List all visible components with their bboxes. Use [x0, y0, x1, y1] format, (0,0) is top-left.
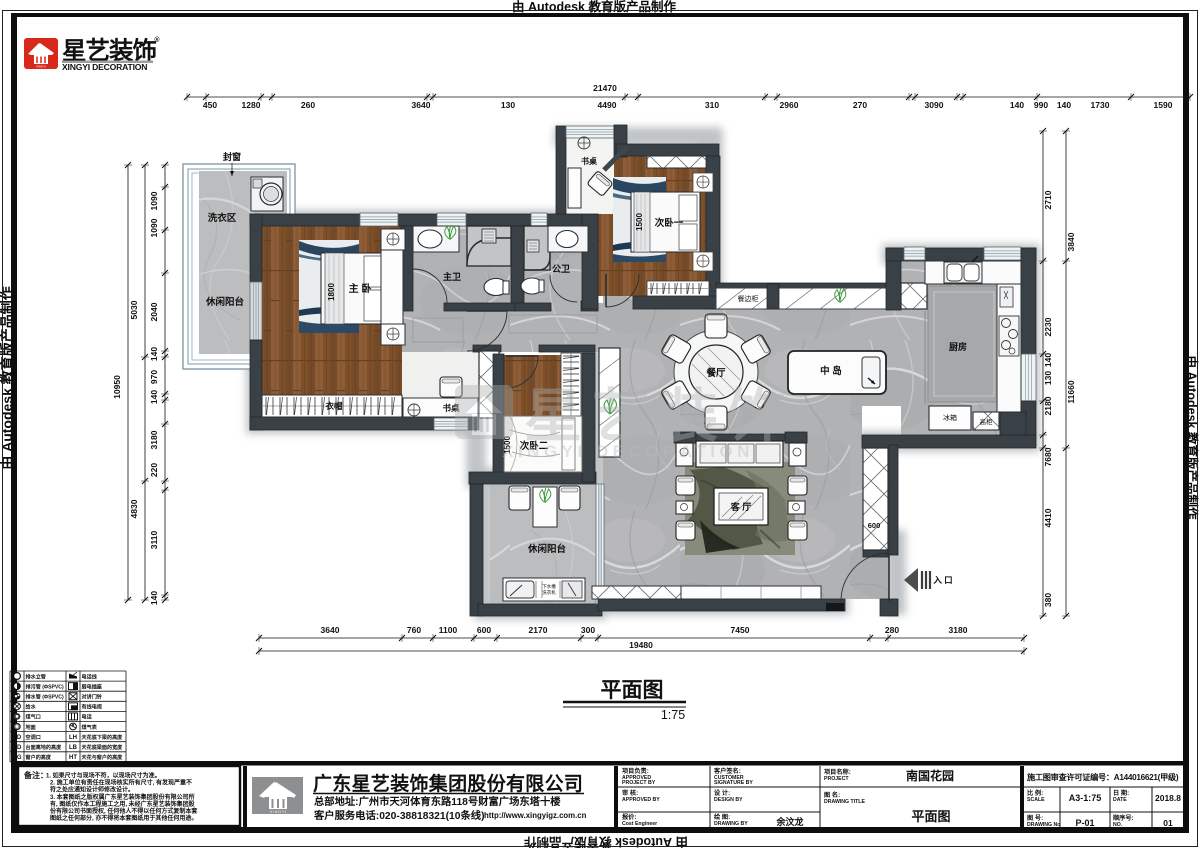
svg-text:冰箱: 冰箱	[943, 413, 957, 422]
svg-text:煤气口: 煤气口	[25, 714, 41, 721]
svg-text:休闲阳台: 休闲阳台	[205, 296, 245, 308]
svg-text:符之处应通知设计师修改设计。: 符之处应通知设计师修改设计。	[50, 786, 134, 794]
svg-text:01: 01	[1163, 818, 1173, 828]
svg-text:300: 300	[581, 625, 595, 635]
svg-text:DRAWING BY: DRAWING BY	[714, 821, 748, 827]
svg-text:总部地址:广州市天河体育东路118号财富广场东塔十楼: 总部地址:广州市天河体育东路118号财富广场东塔十楼	[314, 795, 561, 808]
svg-text:DRAWING TITLE: DRAWING TITLE	[824, 799, 865, 805]
svg-text:1730: 1730	[1091, 100, 1110, 110]
svg-text:http://www.xingyigz.com.cn: http://www.xingyigz.com.cn	[484, 811, 587, 820]
svg-text:10950: 10950	[112, 375, 122, 399]
svg-text:140: 140	[149, 347, 159, 361]
svg-text:排水立管: 排水立管	[26, 673, 46, 680]
svg-text:3180: 3180	[949, 625, 968, 635]
svg-text:3180: 3180	[149, 430, 159, 449]
svg-text:广东星艺装饰集团股份有限公司: 广东星艺装饰集团股份有限公司	[313, 772, 583, 795]
svg-text:1100: 1100	[439, 625, 458, 635]
svg-text:图纸之任何部分, 亦不得将本套图纸用于其他任何用途。: 图纸之任何部分, 亦不得将本套图纸用于其他任何用途。	[50, 814, 197, 822]
svg-text:600: 600	[477, 625, 491, 635]
svg-text:21470: 21470	[593, 83, 617, 93]
svg-text:餐厅: 餐厅	[705, 367, 726, 379]
svg-text:对讲门铃: 对讲门铃	[82, 693, 103, 700]
svg-text:1090: 1090	[149, 218, 159, 237]
svg-text:450: 450	[203, 100, 217, 110]
svg-text:5030: 5030	[129, 300, 139, 319]
svg-text:项目负责:: 项目负责:	[622, 767, 649, 775]
svg-text:图 号:: 图 号:	[1027, 814, 1043, 822]
svg-text:HT: HT	[69, 755, 77, 761]
svg-text:DATE: DATE	[1113, 797, 1127, 803]
svg-text:2230: 2230	[1043, 317, 1053, 336]
svg-text:项目名称:: 项目名称:	[824, 768, 851, 776]
svg-text:弱电插座: 弱电插座	[82, 683, 102, 690]
svg-text:APPROVED BY: APPROVED BY	[622, 797, 660, 803]
svg-text:施工图审查许可证编号：A144016621(甲级): 施工图审查许可证编号：A144016621(甲级)	[1027, 772, 1179, 782]
svg-text:客 厅: 客 厅	[730, 501, 752, 512]
svg-text:衣帽: 衣帽	[325, 401, 343, 411]
svg-text:给水: 给水	[26, 704, 37, 711]
svg-text:3840: 3840	[1066, 232, 1076, 251]
svg-text:比 例:: 比 例:	[1027, 789, 1043, 797]
svg-text:1. 如果尺寸与现场不符，以现场尺寸为准。: 1. 如果尺寸与现场不符，以现场尺寸为准。	[46, 772, 161, 780]
svg-text:星艺装饰: 星艺装饰	[524, 384, 796, 449]
svg-text:XINGYI: XINGYI	[36, 65, 46, 69]
svg-text:平面图: 平面图	[911, 809, 950, 824]
svg-text:排水管 (ΦSPVC): 排水管 (ΦSPVC)	[26, 693, 64, 700]
svg-text:中 岛: 中 岛	[820, 365, 842, 377]
svg-text:2710: 2710	[1043, 190, 1053, 209]
svg-text:次卧一: 次卧一	[655, 217, 684, 229]
svg-text:1500: 1500	[635, 213, 644, 231]
svg-text:天花底下梁的高度: 天花底下梁的高度	[82, 734, 124, 741]
svg-text:270: 270	[853, 100, 867, 110]
svg-text:封窗: 封窗	[223, 151, 241, 162]
svg-text:休闲阳台: 休闲阳台	[527, 543, 567, 555]
svg-text:7680: 7680	[1043, 447, 1053, 466]
svg-text:图 名:: 图 名:	[824, 791, 840, 799]
svg-text:设 计:: 设 计:	[714, 789, 730, 797]
svg-text:Cost Engineer: Cost Engineer	[622, 821, 657, 827]
svg-text:洗衣机: 洗衣机	[542, 589, 556, 596]
svg-text:台面离地的高度: 台面离地的高度	[26, 744, 63, 751]
svg-text:2040: 2040	[149, 302, 159, 321]
svg-text:地面: 地面	[26, 724, 36, 731]
svg-text:DESIGN BY: DESIGN BY	[714, 797, 743, 803]
svg-text:140: 140	[1057, 100, 1071, 110]
svg-text:天花底梁面的宽度: 天花底梁面的宽度	[82, 744, 124, 751]
svg-text:HG: HG	[13, 755, 22, 761]
svg-text:1590: 1590	[1154, 100, 1173, 110]
svg-text:电话: 电话	[82, 714, 92, 721]
svg-text:140: 140	[149, 390, 159, 404]
svg-text:余汶龙: 余汶龙	[775, 816, 803, 827]
svg-text:顺序号:: 顺序号:	[1113, 814, 1134, 822]
svg-text:SCALE: SCALE	[1027, 797, 1045, 803]
svg-text:140: 140	[149, 591, 159, 605]
svg-text:1800: 1800	[327, 283, 336, 301]
svg-text:有, 图纸仅作本工程施工之用, 未经广东星艺装饰集团股: 有, 图纸仅作本工程施工之用, 未经广东星艺装饰集团股	[50, 800, 196, 808]
svg-text:平面图: 平面图	[601, 679, 664, 702]
svg-text:3090: 3090	[925, 100, 944, 110]
svg-text:2960: 2960	[780, 100, 799, 110]
svg-text:260: 260	[301, 100, 315, 110]
svg-text:XINGYI DECORATION: XINGYI DECORATION	[62, 62, 147, 72]
svg-text:绘 图:: 绘 图:	[714, 813, 730, 821]
svg-text:2180: 2180	[1043, 396, 1053, 415]
svg-text:1090: 1090	[149, 191, 159, 210]
svg-text:3. 本套图纸之版权属广东星艺装饰集团股份有限公司所: 3. 本套图纸之版权属广东星艺装饰集团股份有限公司所	[50, 793, 195, 801]
svg-text:3110: 3110	[149, 531, 159, 550]
svg-text:7450: 7450	[731, 625, 750, 635]
svg-text:有线电视: 有线电视	[82, 704, 103, 711]
svg-text:220: 220	[149, 463, 159, 477]
svg-text:客户服务电话:020-38818321(10条线): 客户服务电话:020-38818321(10条线)	[313, 809, 485, 822]
svg-text:餐边柜: 餐边柜	[738, 294, 759, 303]
svg-text:煤气表: 煤气表	[81, 724, 98, 731]
svg-text:下水槽: 下水槽	[542, 583, 556, 590]
svg-text:窗户的高度: 窗户的高度	[26, 754, 52, 761]
svg-text:客户签名:: 客户签名:	[713, 767, 741, 775]
svg-text:LB: LB	[69, 745, 78, 751]
svg-text:NO.: NO.	[1113, 822, 1123, 828]
svg-text:1280: 1280	[242, 100, 261, 110]
svg-text:3640: 3640	[412, 100, 431, 110]
svg-text:主 卧: 主 卧	[349, 282, 372, 295]
svg-text:主卫: 主卫	[443, 271, 461, 282]
svg-text:PROJECT BY: PROJECT BY	[622, 780, 656, 786]
svg-text:X I N G Y I: X I N G Y I	[270, 810, 286, 814]
svg-text:2. 施工单位有责任在现场核实所有尺寸, 有发现严重不: 2. 施工单位有责任在现场核实所有尺寸, 有发现严重不	[50, 779, 192, 787]
svg-text:140: 140	[1010, 100, 1024, 110]
svg-text:XINGYI DECORATION: XINGYI DECORATION	[502, 442, 754, 461]
svg-text:760: 760	[407, 625, 421, 635]
svg-text:空调口: 空调口	[26, 734, 41, 741]
svg-text:4490: 4490	[598, 100, 617, 110]
svg-text:2018.8: 2018.8	[1155, 793, 1181, 803]
svg-text:4410: 4410	[1043, 508, 1053, 527]
svg-text:990: 990	[1034, 100, 1048, 110]
svg-text:3640: 3640	[321, 625, 340, 635]
svg-text:排污管 (ΦSPVC): 排污管 (ΦSPVC)	[26, 683, 64, 690]
svg-text:SIGNATURE BY: SIGNATURE BY	[714, 780, 753, 786]
svg-text:份有限公司书面授权, 任何他人不得以任何方式复制本套: 份有限公司书面授权, 任何他人不得以任何方式复制本套	[50, 807, 197, 815]
svg-text:洗衣区: 洗衣区	[208, 212, 237, 224]
svg-text:1:75: 1:75	[661, 708, 685, 722]
svg-text:4830: 4830	[129, 499, 139, 518]
svg-text:审 核:: 审 核:	[622, 789, 638, 797]
svg-text:SD: SD	[13, 735, 22, 741]
svg-text:书桌: 书桌	[581, 156, 598, 166]
svg-text:280: 280	[885, 625, 899, 635]
svg-text:电话线: 电话线	[82, 673, 98, 680]
svg-text:310: 310	[705, 100, 719, 110]
svg-text:南国花园: 南国花园	[906, 768, 954, 783]
svg-text:2170: 2170	[529, 625, 548, 635]
svg-text:130: 130	[1043, 371, 1053, 385]
svg-text:公卫: 公卫	[552, 264, 570, 274]
svg-text:600: 600	[868, 521, 881, 530]
svg-text:DRAWING No: DRAWING No	[1027, 822, 1060, 828]
svg-text:19480: 19480	[629, 640, 653, 650]
svg-text:备注：: 备注：	[23, 770, 48, 780]
svg-text:LH: LH	[69, 735, 77, 741]
svg-text:入 口: 入 口	[932, 575, 952, 585]
svg-text:140: 140	[1043, 353, 1053, 367]
svg-text:970: 970	[149, 370, 159, 384]
svg-text:PROJECT: PROJECT	[824, 776, 849, 782]
svg-text:A3-1:75: A3-1:75	[1069, 793, 1102, 803]
svg-text:HD: HD	[13, 745, 22, 751]
svg-text:®: ®	[154, 36, 160, 44]
svg-text:厨房: 厨房	[949, 341, 967, 352]
svg-text:高柜: 高柜	[980, 417, 994, 426]
svg-text:报价:: 报价:	[622, 813, 636, 821]
svg-text:日 期:: 日 期:	[1113, 789, 1129, 797]
svg-text:380: 380	[1043, 593, 1053, 607]
svg-text:130: 130	[501, 100, 515, 110]
svg-text:天花与窗户的高度: 天花与窗户的高度	[82, 754, 124, 761]
svg-text:11660: 11660	[1066, 380, 1076, 403]
svg-text:P-01: P-01	[1075, 818, 1094, 828]
